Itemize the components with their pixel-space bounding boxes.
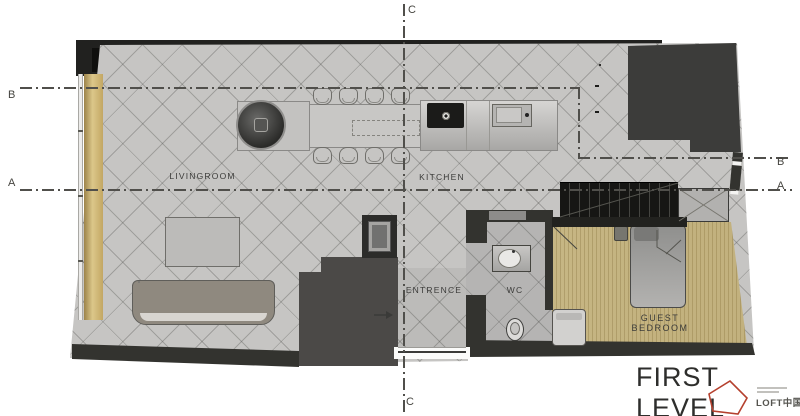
label-kitchen: KITCHEN: [418, 172, 466, 182]
blanket-fold: [657, 230, 681, 262]
section-line-b-left: [20, 87, 578, 89]
label-wc: WC: [503, 285, 527, 295]
logo-tagline-line: [757, 387, 787, 389]
bedroom-door-swing: [554, 227, 577, 249]
entrance-arrow-head: [386, 311, 393, 319]
section-line-b-right: [578, 157, 792, 159]
section-label-b-right: B: [777, 156, 784, 168]
section-line-b-step: [578, 87, 580, 158]
section-label-a-left: A: [8, 177, 15, 189]
label-entrance: ENTRENCE: [405, 285, 463, 295]
section-label-c-bottom: C: [406, 396, 414, 408]
logo: LOFT中国: [704, 378, 800, 416]
section-line-a: [20, 189, 792, 191]
label-guest-bedroom: GUEST BEDROOM: [612, 313, 708, 333]
section-label-a-right: A: [777, 180, 784, 192]
detail-strokes: [0, 0, 800, 416]
section-line-c: [403, 4, 405, 412]
logo-text: LOFT中国: [756, 395, 800, 409]
floor-plan: B B A A C C LIVINGROOM KITCHEN ENTRENCE …: [0, 0, 800, 416]
logo-house-icon: [704, 378, 752, 416]
logo-tagline-line: [757, 391, 779, 393]
section-label-c-top: C: [408, 4, 416, 16]
section-label-b-left: B: [8, 89, 15, 101]
label-livingroom: LIVINGROOM: [160, 171, 245, 181]
